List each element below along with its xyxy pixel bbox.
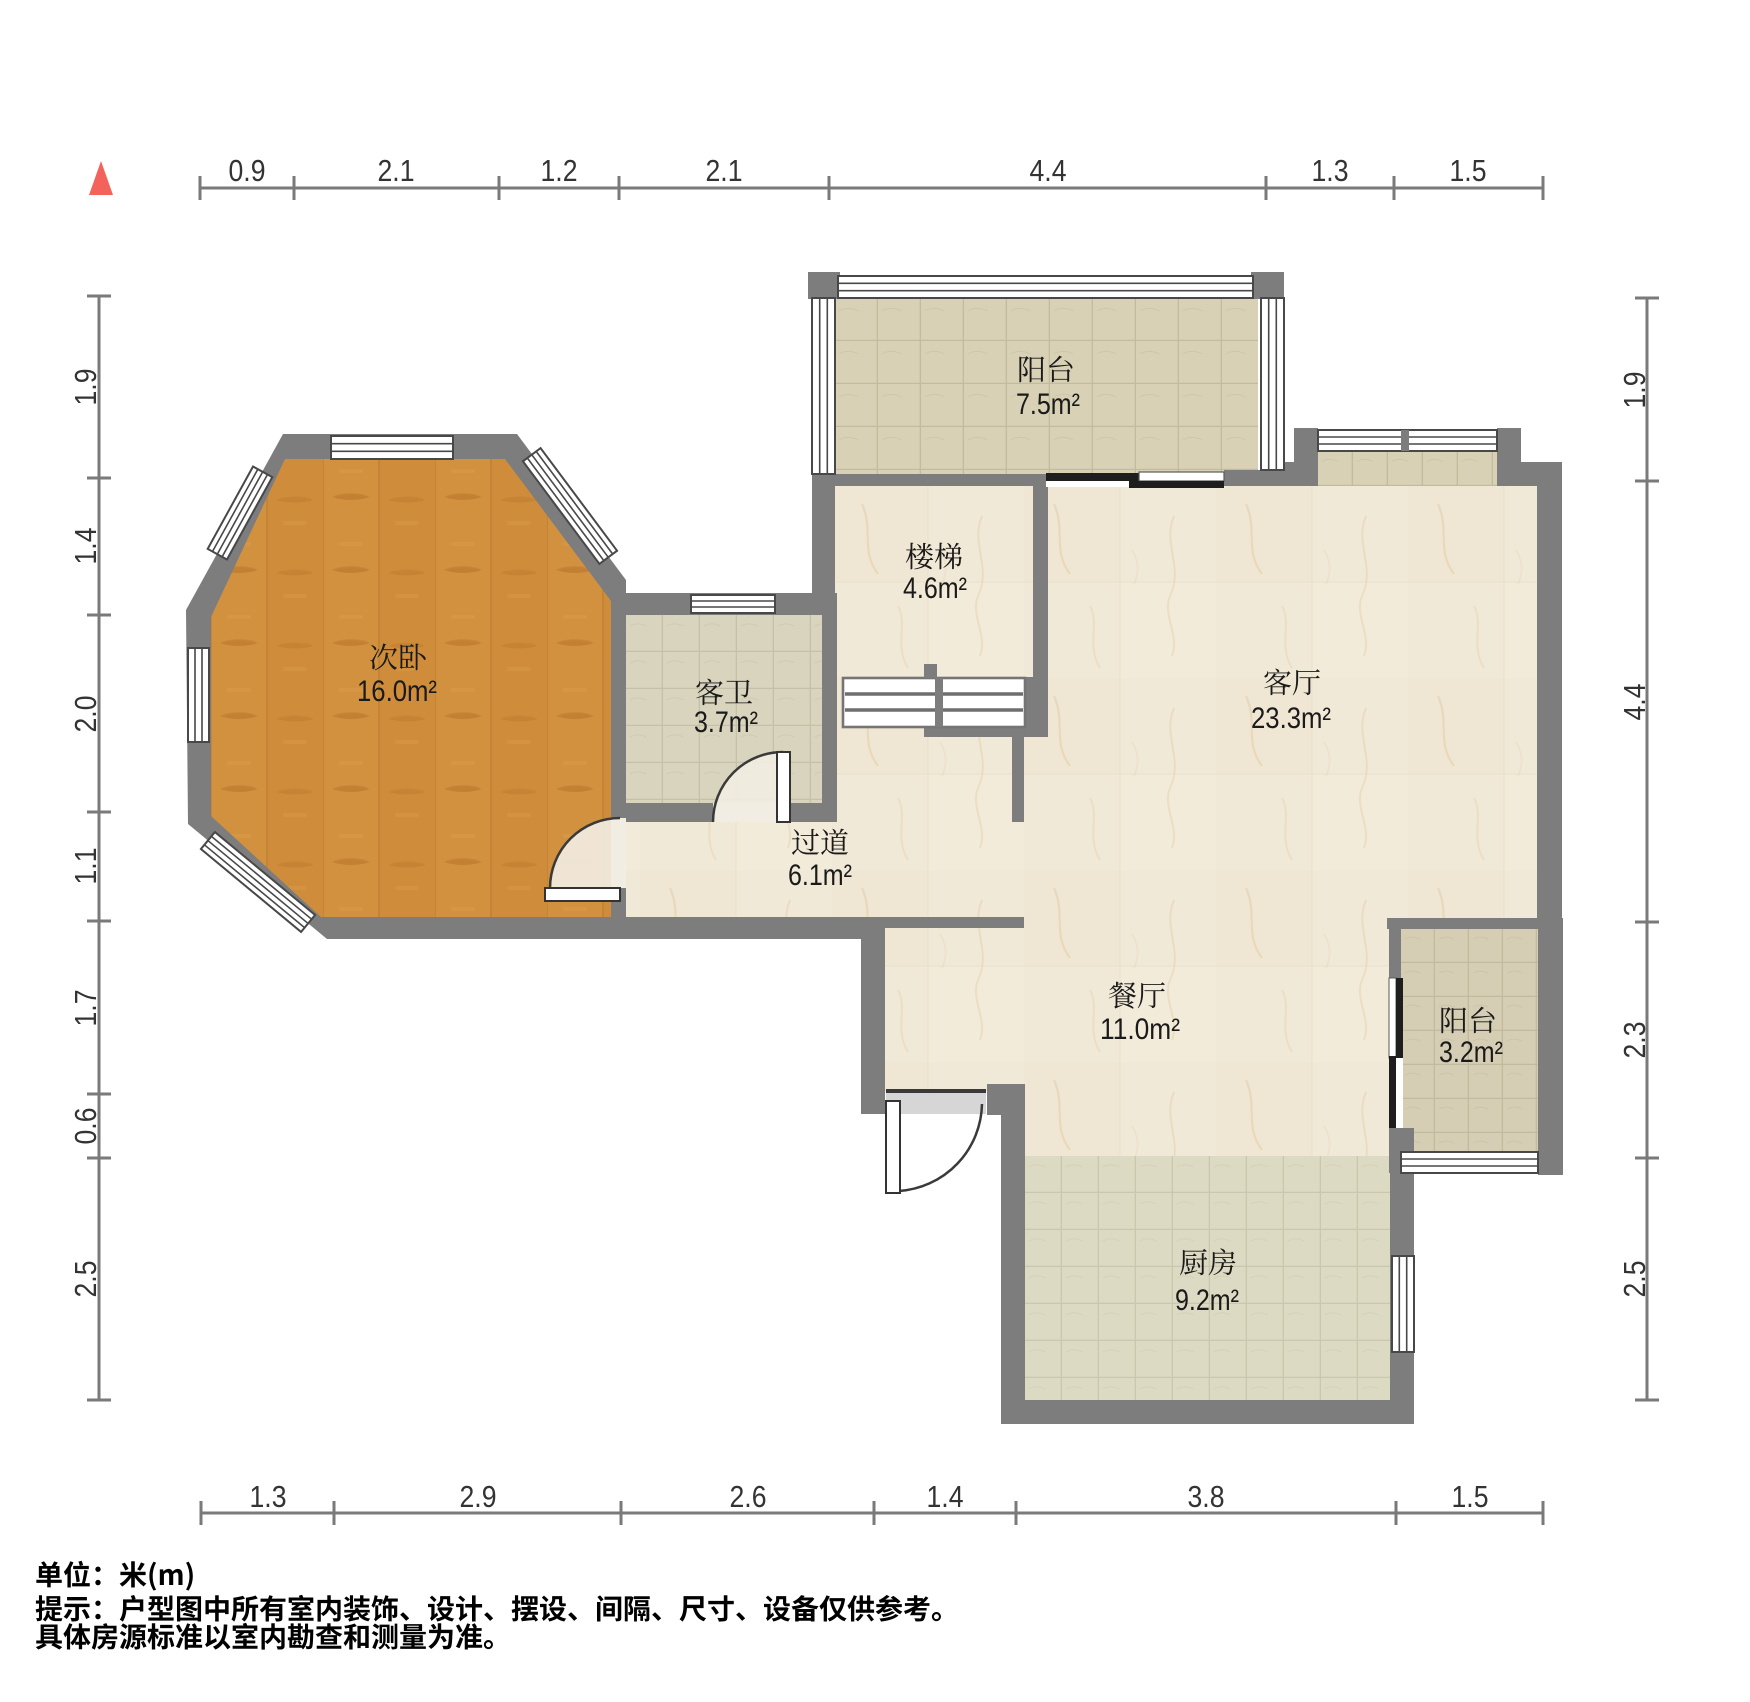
svg-text:11.0m²: 11.0m² [1100, 1013, 1180, 1046]
svg-text:3.2m²: 3.2m² [1439, 1036, 1503, 1069]
svg-text:2.0: 2.0 [68, 696, 103, 733]
svg-text:1.4: 1.4 [927, 1479, 964, 1514]
svg-text:1.1: 1.1 [68, 848, 103, 885]
svg-text:0.6: 0.6 [68, 1108, 103, 1145]
svg-text:2.5: 2.5 [1617, 1261, 1652, 1298]
svg-text:3.8: 3.8 [1188, 1479, 1225, 1514]
svg-text:1.5: 1.5 [1450, 153, 1487, 188]
svg-text:16.0m²: 16.0m² [357, 675, 437, 708]
svg-text:1.4: 1.4 [68, 528, 103, 565]
svg-text:1.2: 1.2 [541, 153, 578, 188]
svg-text:4.4: 4.4 [1617, 684, 1652, 721]
svg-text:23.3m²: 23.3m² [1251, 702, 1331, 735]
svg-text:2.5: 2.5 [68, 1261, 103, 1298]
svg-text:1.5: 1.5 [1452, 1479, 1489, 1514]
svg-text:7.5m²: 7.5m² [1016, 388, 1080, 421]
svg-text:2.1: 2.1 [378, 153, 415, 188]
svg-text:6.1m²: 6.1m² [788, 859, 852, 892]
svg-text:3.7m²: 3.7m² [694, 706, 758, 739]
svg-text:2.9: 2.9 [460, 1479, 497, 1514]
svg-text:4.6m²: 4.6m² [903, 572, 967, 605]
svg-text:1.7: 1.7 [68, 990, 103, 1027]
svg-text:4.4: 4.4 [1030, 153, 1067, 188]
svg-text:1.9: 1.9 [68, 369, 103, 406]
svg-text:9.2m²: 9.2m² [1175, 1284, 1239, 1317]
svg-text:1.3: 1.3 [250, 1479, 287, 1514]
svg-text:1.9: 1.9 [1617, 372, 1652, 409]
svg-text:2.6: 2.6 [730, 1479, 767, 1514]
svg-text:2.1: 2.1 [706, 153, 743, 188]
svg-text:0.9: 0.9 [229, 153, 266, 188]
svg-text:1.3: 1.3 [1312, 153, 1349, 188]
svg-text:2.3: 2.3 [1617, 1022, 1652, 1059]
